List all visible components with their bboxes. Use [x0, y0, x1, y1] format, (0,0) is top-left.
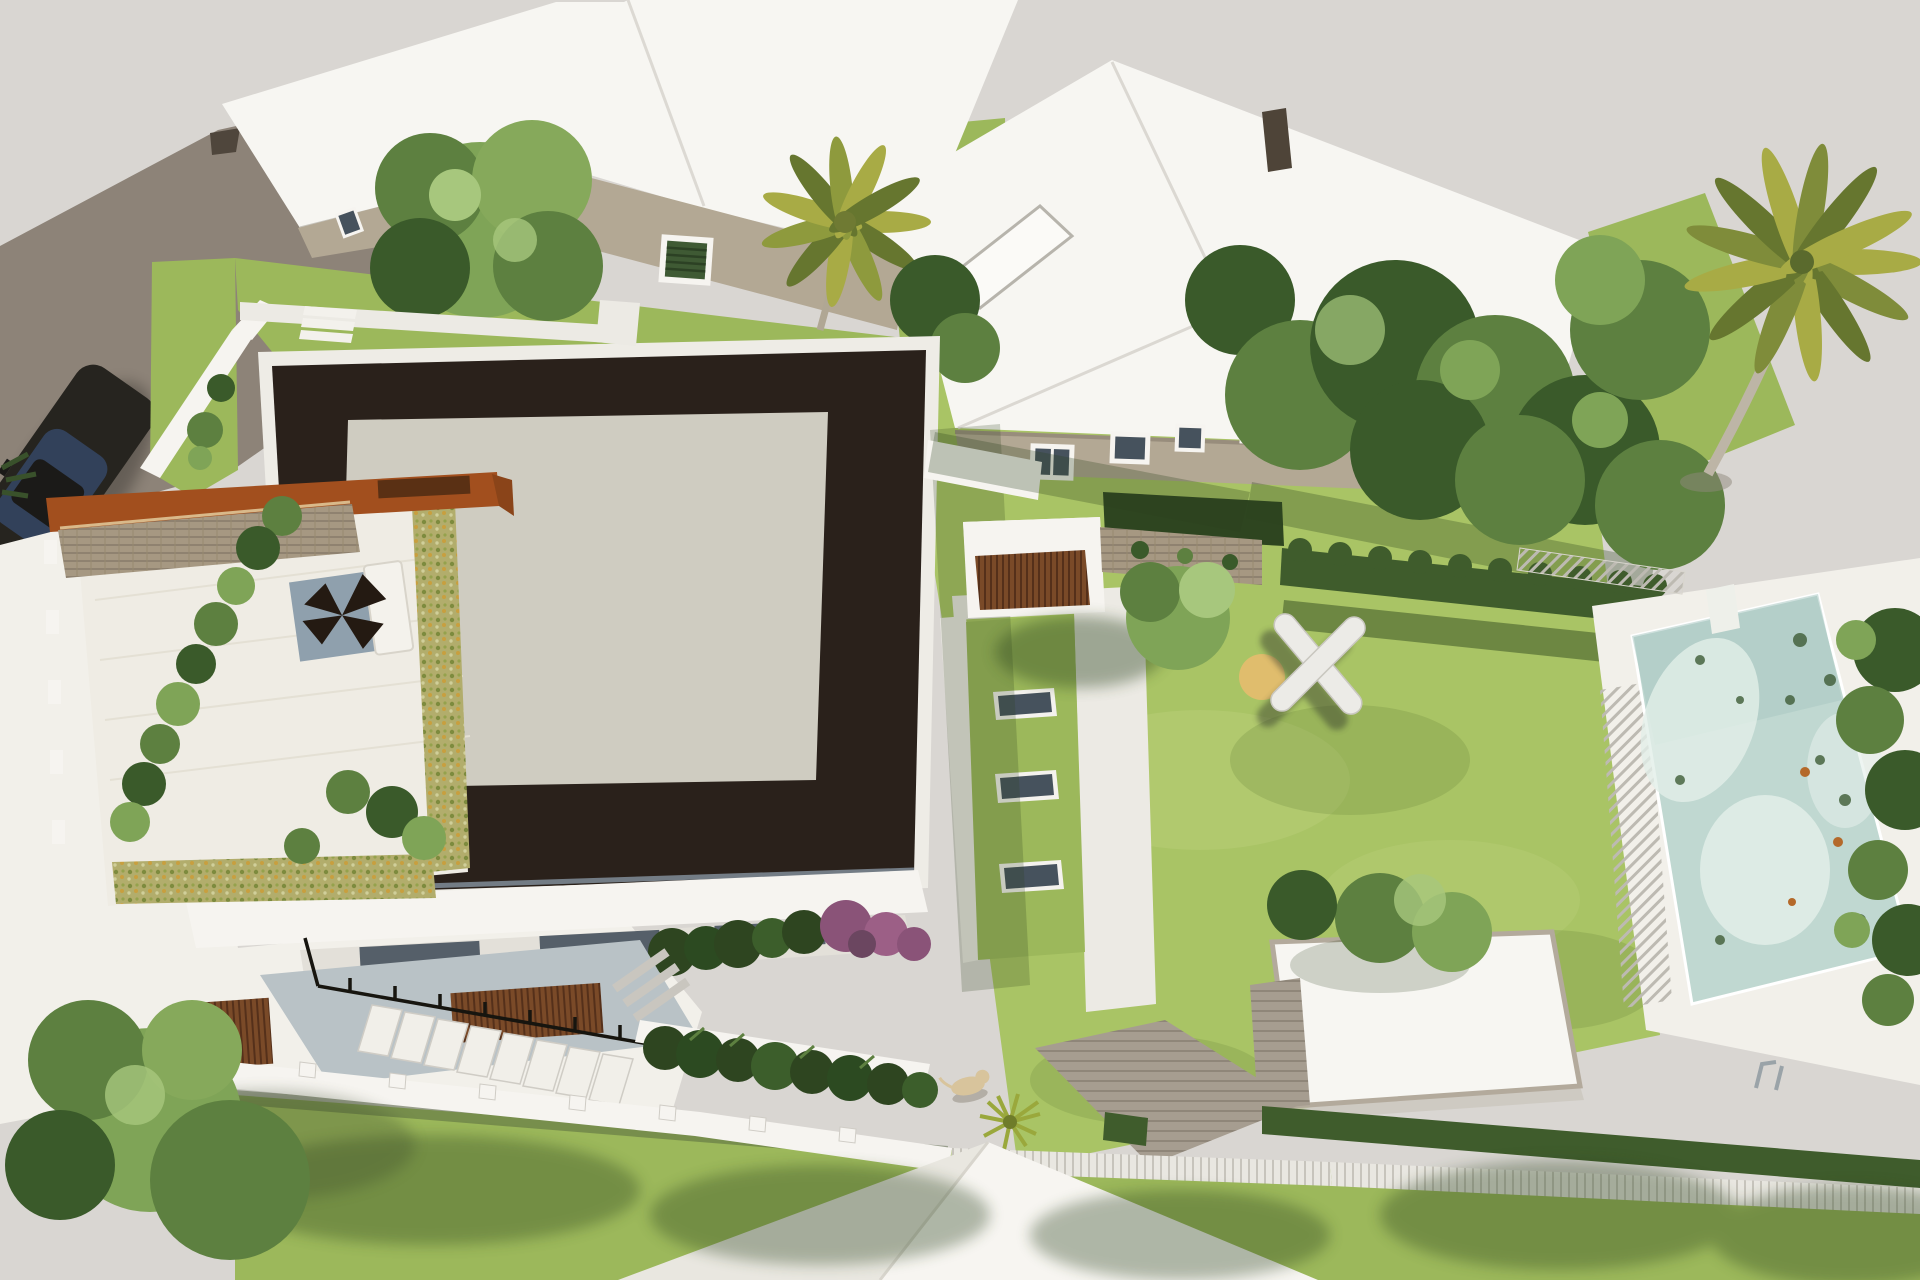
wall-vine — [1222, 554, 1238, 570]
paver-path — [1250, 978, 1310, 1110]
bush — [187, 412, 223, 448]
scene-canvas — [0, 0, 1920, 1280]
roof-terrace — [44, 472, 514, 906]
palm-base-shadow — [1680, 472, 1732, 492]
wall-vine — [1177, 548, 1193, 564]
bush — [188, 446, 212, 470]
pool-step-ledge — [1706, 584, 1740, 634]
house-b-shuttered-window — [658, 234, 713, 286]
hedge-box-small — [1103, 1112, 1148, 1146]
succulent-bed-bottom — [112, 854, 436, 904]
front-steps — [299, 306, 357, 343]
architectural-render-scene — [0, 0, 1920, 1280]
front-yard-tree — [370, 120, 603, 321]
entry-stub-path — [596, 300, 640, 346]
pergola-beam — [963, 517, 1102, 553]
bush — [207, 374, 235, 402]
pergola-wood-louvers — [975, 550, 1090, 610]
pool-reflection — [1700, 795, 1830, 945]
wall-vine — [1131, 541, 1149, 559]
